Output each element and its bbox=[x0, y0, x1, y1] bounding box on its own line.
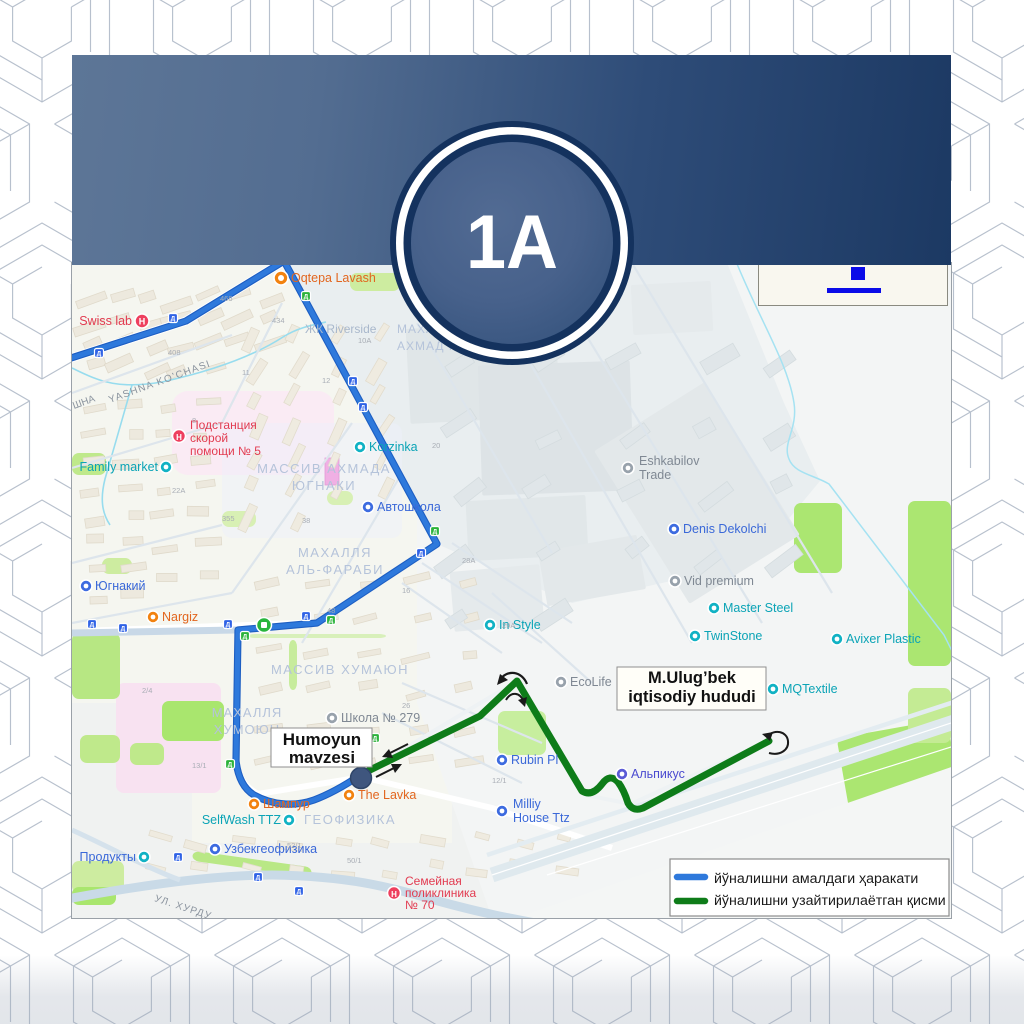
svg-text:Avixer Plastic: Avixer Plastic bbox=[846, 632, 921, 646]
svg-text:House Ttz: House Ttz bbox=[513, 811, 570, 825]
svg-text:Oqtepa Lavash: Oqtepa Lavash bbox=[291, 271, 376, 285]
svg-text:12: 12 bbox=[322, 376, 330, 385]
svg-text:Д: Д bbox=[228, 762, 233, 769]
svg-text:52/1: 52/1 bbox=[287, 841, 302, 850]
svg-text:Д: Д bbox=[256, 875, 261, 882]
svg-text:SelfWash TTZ: SelfWash TTZ bbox=[202, 813, 282, 827]
svg-text:50/1: 50/1 bbox=[347, 856, 362, 865]
svg-text:Д: Д bbox=[243, 634, 248, 641]
svg-text:Family market: Family market bbox=[80, 460, 159, 474]
svg-text:помощи № 5: помощи № 5 bbox=[190, 444, 261, 458]
svg-text:Humoyun: Humoyun bbox=[283, 730, 361, 749]
svg-text:iqtisodiy hududi: iqtisodiy hududi bbox=[628, 688, 755, 706]
svg-text:Д: Д bbox=[97, 351, 102, 358]
svg-text:The Lavka: The Lavka bbox=[358, 788, 416, 802]
svg-text:Vid premium: Vid premium bbox=[684, 574, 754, 588]
svg-text:Альпикус: Альпикус bbox=[631, 767, 685, 781]
svg-text:йўналишни узайтирилаётган қисм: йўналишни узайтирилаётган қисми bbox=[714, 893, 946, 909]
svg-text:ГЕОФИЗИКА: ГЕОФИЗИКА bbox=[304, 812, 396, 827]
svg-text:8: 8 bbox=[192, 416, 196, 425]
svg-text:Подстанция: Подстанция bbox=[190, 418, 257, 432]
svg-text:скорой: скорой bbox=[190, 431, 228, 445]
svg-text:Югнакий: Югнакий bbox=[95, 579, 145, 593]
svg-text:МАССИВ ХУМАЮН: МАССИВ ХУМАЮН bbox=[271, 662, 409, 677]
svg-text:Milliy: Milliy bbox=[513, 797, 542, 811]
svg-text:ЮГНАКИ: ЮГНАКИ bbox=[292, 478, 356, 493]
svg-text:Д: Д bbox=[176, 855, 181, 862]
svg-text:МАХАЛЛЯ: МАХАЛЛЯ bbox=[298, 545, 372, 560]
svg-text:Rubin Pl: Rubin Pl bbox=[511, 753, 558, 767]
svg-text:EcoLife: EcoLife bbox=[570, 675, 612, 689]
svg-text:Denis Dekolchi: Denis Dekolchi bbox=[683, 522, 766, 536]
svg-text:28А: 28А bbox=[462, 556, 475, 565]
svg-text:АЛЬ-ФАРАБИ: АЛЬ-ФАРАБИ bbox=[286, 562, 384, 577]
svg-text:Д: Д bbox=[226, 622, 231, 629]
svg-text:466: 466 bbox=[220, 294, 233, 303]
svg-text:M.Ulug’bek: M.Ulug’bek bbox=[648, 669, 737, 687]
svg-text:48: 48 bbox=[327, 606, 335, 615]
svg-text:13/1: 13/1 bbox=[192, 761, 207, 770]
svg-text:11: 11 bbox=[242, 368, 250, 377]
svg-text:H: H bbox=[176, 433, 182, 442]
svg-text:Eshkabilov: Eshkabilov bbox=[639, 454, 700, 468]
svg-text:Узбекгеофизика: Узбекгеофизика bbox=[224, 842, 317, 856]
svg-text:Д: Д bbox=[351, 379, 356, 386]
svg-text:Шампур: Шампур bbox=[263, 797, 310, 811]
svg-text:Trade: Trade bbox=[639, 468, 671, 482]
svg-text:Д: Д bbox=[361, 405, 366, 412]
svg-text:16: 16 bbox=[402, 586, 410, 595]
svg-text:MQTextile: MQTextile bbox=[782, 682, 838, 696]
svg-text:Школа № 279: Школа № 279 bbox=[341, 711, 420, 725]
svg-text:434: 434 bbox=[272, 316, 285, 325]
svg-text:Master Steel: Master Steel bbox=[723, 601, 793, 615]
svg-text:Swiss lab: Swiss lab bbox=[79, 314, 132, 328]
svg-text:1A: 1A bbox=[466, 200, 558, 285]
svg-text:Д: Д bbox=[297, 889, 302, 896]
svg-text:Автошкола: Автошкола bbox=[377, 500, 441, 514]
svg-text:Д: Д bbox=[419, 551, 424, 558]
svg-text:ЖК Riverside: ЖК Riverside bbox=[305, 322, 377, 336]
svg-text:МАССИВ АХМАДА: МАССИВ АХМАДА bbox=[257, 461, 391, 476]
svg-text:H: H bbox=[391, 890, 397, 899]
svg-text:Д: Д bbox=[121, 626, 126, 633]
svg-text:12/1: 12/1 bbox=[492, 776, 507, 785]
svg-text:10А: 10А bbox=[358, 336, 371, 345]
svg-text:ХУМОЮН: ХУМОЮН bbox=[214, 722, 280, 737]
svg-text:26: 26 bbox=[402, 701, 410, 710]
svg-text:Д: Д bbox=[304, 614, 309, 621]
svg-text:Д: Д bbox=[171, 316, 176, 323]
svg-text:22А: 22А bbox=[172, 486, 185, 495]
svg-text:йўналишни амалдаги ҳаракати: йўналишни амалдаги ҳаракати bbox=[714, 871, 918, 887]
svg-text:408: 408 bbox=[168, 348, 181, 357]
svg-text:2/4: 2/4 bbox=[142, 686, 152, 695]
svg-text:Nargiz: Nargiz bbox=[162, 610, 198, 624]
svg-text:Д: Д bbox=[433, 529, 438, 536]
svg-text:Д: Д bbox=[304, 294, 309, 301]
svg-text:TwinStone: TwinStone bbox=[704, 629, 762, 643]
svg-text:МАХАЛЛЯ: МАХАЛЛЯ bbox=[212, 705, 283, 720]
svg-text:mavzesi: mavzesi bbox=[289, 748, 355, 767]
svg-text:H: H bbox=[139, 317, 146, 327]
svg-text:№ 70: № 70 bbox=[405, 898, 435, 912]
svg-text:Д: Д bbox=[329, 618, 334, 625]
svg-text:20: 20 bbox=[432, 441, 440, 450]
svg-text:38: 38 bbox=[302, 516, 310, 525]
svg-text:Продукты: Продукты bbox=[80, 850, 136, 864]
svg-text:Korzinka: Korzinka bbox=[369, 440, 418, 454]
svg-text:Д: Д bbox=[373, 736, 378, 743]
svg-text:355: 355 bbox=[222, 514, 235, 523]
svg-text:Д: Д bbox=[90, 622, 95, 629]
svg-text:29А: 29А bbox=[502, 621, 515, 630]
